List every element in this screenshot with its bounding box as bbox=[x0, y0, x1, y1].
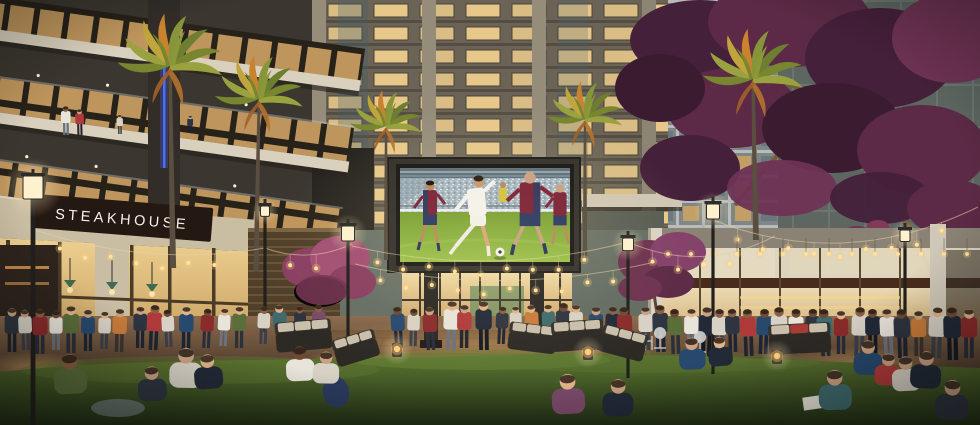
plaza-rendering: STEAKHOUSE bbox=[0, 0, 980, 425]
vignette bbox=[0, 0, 980, 425]
